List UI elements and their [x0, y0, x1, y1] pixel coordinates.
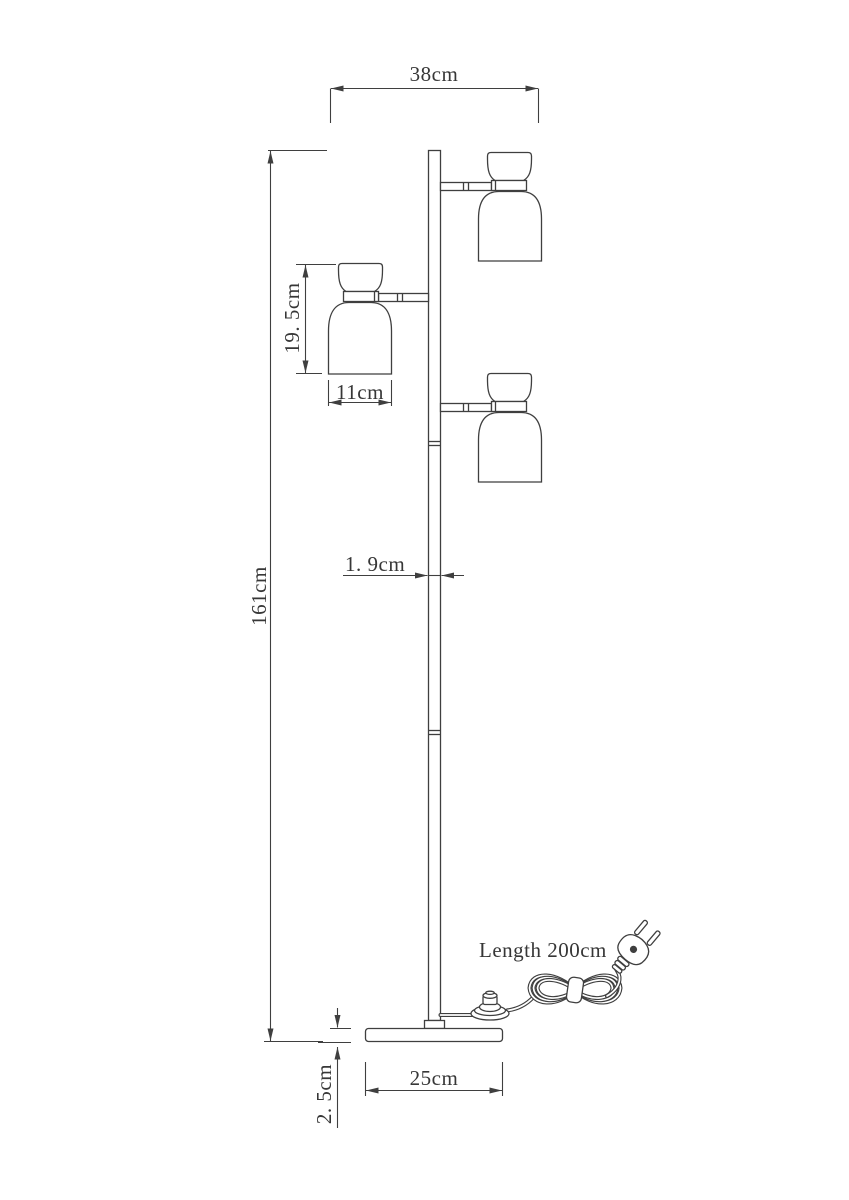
foot-switch — [471, 991, 509, 1020]
lamp-head-middle-left — [329, 264, 429, 375]
lamp-cup — [488, 374, 532, 402]
fixture-width-label: 38cm — [410, 62, 459, 86]
dim-fixture-width: 38cm — [331, 62, 539, 123]
lamp-arm — [441, 183, 492, 191]
base-height-label: 2. 5cm — [312, 1064, 336, 1124]
coil-wrap — [566, 977, 584, 1004]
dim-head-height: 19. 5cm — [280, 265, 336, 374]
base-width-label: 25cm — [410, 1066, 459, 1090]
cord-length-label: Length 200cm — [479, 938, 607, 962]
lamp-cup — [339, 264, 383, 292]
dim-base-height: 2. 5cm — [312, 1008, 351, 1128]
lamp-arm — [379, 294, 429, 302]
lamp-dimension-drawing: 161cm 38cm — [0, 0, 849, 1200]
total-height-label: 161cm — [247, 566, 271, 626]
lamp-neck — [492, 181, 527, 191]
plug-pin — [646, 930, 660, 946]
power-plug — [604, 916, 665, 980]
lamp-arm — [441, 404, 492, 412]
power-cord — [441, 969, 621, 1015]
dim-pole-diameter: 1. 9cm — [343, 552, 464, 576]
lamp-cup — [488, 153, 532, 181]
lamp-pole — [425, 151, 445, 1029]
pole-collar — [425, 1021, 445, 1029]
shade-width-label: 11cm — [336, 380, 384, 404]
lamp-shade — [479, 192, 542, 262]
drawing-canvas: 161cm 38cm — [0, 0, 849, 1200]
lamp-shade — [329, 303, 392, 375]
lamp-head-bottom — [441, 374, 542, 483]
pole-diameter-label: 1. 9cm — [345, 552, 405, 576]
lamp-base — [366, 1029, 503, 1042]
lamp-neck — [344, 292, 379, 302]
lamp-neck — [492, 402, 527, 412]
lamp-head-top — [441, 153, 542, 262]
lamp-shade — [479, 413, 542, 483]
plug-pin — [634, 920, 648, 936]
dim-base-width: 25cm — [366, 1062, 503, 1096]
dim-shade-width: 11cm — [329, 380, 392, 406]
head-height-label: 19. 5cm — [280, 282, 304, 353]
